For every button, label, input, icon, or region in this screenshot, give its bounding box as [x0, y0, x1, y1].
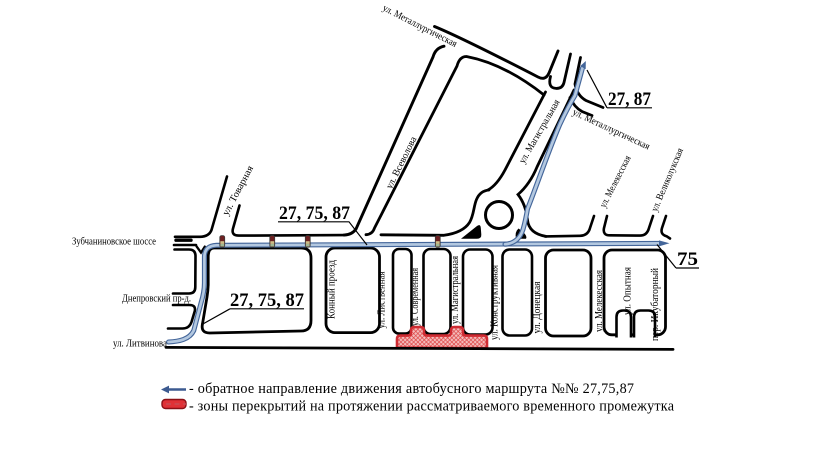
svg-text:Конный проезд: Конный проезд: [327, 260, 338, 319]
svg-text:ул. Металлургическая: ул. Металлургическая: [571, 107, 652, 153]
svg-text:ул. Донецкая: ул. Донецкая: [532, 281, 543, 333]
svg-text:ул. Металлургическая: ул. Металлургическая: [381, 3, 459, 50]
svg-text:- зоны перекрытий на протяжени: - зоны перекрытий на протяжении рассматр…: [189, 399, 675, 415]
svg-text:ул. Опытная: ул. Опытная: [623, 267, 634, 315]
svg-text:Днепровский пр-д.: Днепровский пр-д.: [122, 294, 191, 305]
svg-text:ул. Всеволова: ул. Всеволова: [384, 134, 420, 190]
svg-text:пер. Икубаторный: пер. Икубаторный: [650, 267, 661, 341]
svg-text:ул. Современная: ул. Современная: [410, 268, 421, 326]
svg-text:27, 75, 87: 27, 75, 87: [279, 204, 350, 224]
svg-text:ул. Великолукская: ул. Великолукская: [649, 146, 686, 213]
svg-text:ул. Литвинова: ул. Литвинова: [113, 339, 167, 350]
svg-text:ул. Мелекесская: ул. Мелекесская: [594, 270, 605, 332]
svg-text:ул. Магистральная: ул. Магистральная: [450, 256, 461, 324]
svg-text:27, 87: 27, 87: [608, 90, 651, 110]
svg-text:- обратное направление движени: - обратное направление движения автобусн…: [189, 381, 634, 397]
svg-text:ул. Конструктивная: ул. Конструктивная: [490, 265, 501, 340]
svg-text:Зубчаниновское шоссе: Зубчаниновское шоссе: [72, 237, 156, 248]
svg-text:75: 75: [677, 250, 698, 270]
svg-text:ул. Мелекесская: ул. Мелекесская: [598, 154, 634, 210]
svg-text:ул. Лиственная: ул. Лиственная: [377, 271, 388, 328]
svg-text:27, 75, 87: 27, 75, 87: [230, 291, 304, 311]
